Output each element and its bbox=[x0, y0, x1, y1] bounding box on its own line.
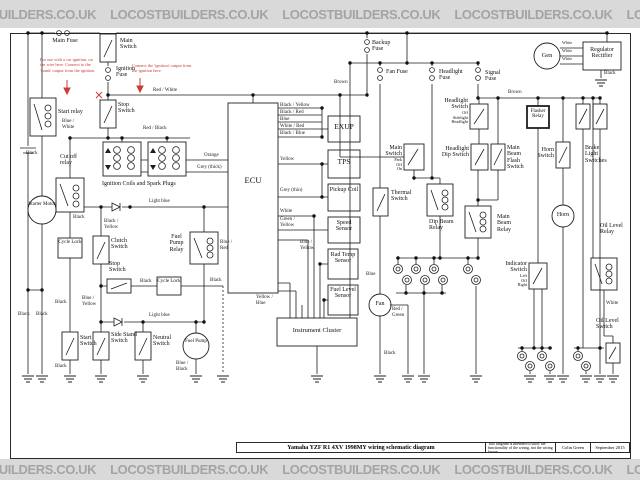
title-block-author: Colin Green bbox=[555, 443, 590, 452]
label-main-switch-top: Main Switch bbox=[120, 38, 146, 51]
wire-label-red-black: Red / Black bbox=[143, 126, 183, 132]
wire-label-blue-red: Blue / Red bbox=[220, 240, 240, 251]
schematic-diagram: Main Fuse Main Switch Ignition Fuse Star… bbox=[0, 28, 640, 459]
page: LOCOSTBUILDERS.CO.UK LOCOSTBUILDERS.CO.U… bbox=[0, 0, 640, 480]
wire-label-grey-thick: Grey (thick) bbox=[197, 165, 231, 171]
title-block: Yamaha YZF R1 4XV 1998MY wiring schemati… bbox=[236, 442, 630, 453]
wire-label-blue-yellow: Blue / Yellow bbox=[82, 296, 102, 307]
wire-label-black: Black bbox=[604, 71, 622, 77]
watermark-text: LOCOSTBUILDERS.CO.UK bbox=[110, 7, 268, 22]
label-fuel-pump-relay: Fuel Pump Relay bbox=[164, 234, 189, 253]
label-signal-fuse: Signal Fuse bbox=[485, 70, 509, 83]
watermark-text: LOCOSTBUILDERS.CO.UK bbox=[282, 7, 440, 22]
watermark-text: LOCOSTBUILDERS.CO.UK bbox=[0, 7, 96, 22]
label-headlight-switch: Headlight Switch bbox=[438, 98, 468, 111]
wire-label-brown: Brown bbox=[334, 80, 354, 86]
wire-label-black-blue: Black / Blue bbox=[280, 131, 316, 137]
label-main-fuse: Main Fuse bbox=[52, 38, 78, 44]
wire-label-blue: Blue bbox=[366, 272, 382, 278]
wire-label-grey-thin: Grey (thin) bbox=[280, 188, 314, 194]
label-clutch-switch: Clutch Switch bbox=[111, 238, 139, 251]
wire-label-black-yellow: Black / Yellow bbox=[104, 219, 130, 230]
wire-label-white-red: White / Red bbox=[280, 124, 316, 130]
watermark-text: LOCOSTBUILDERS.CO.UK bbox=[454, 7, 612, 22]
label-headlight-switch-positions: Off Sidelight Headlight bbox=[438, 111, 468, 125]
title-block-note: This diagram is intended to show the fun… bbox=[485, 443, 555, 452]
label-speed-sensor: Speed Sensor bbox=[328, 220, 360, 233]
title-block-date: September 2015 bbox=[590, 443, 629, 452]
label-fan-fuse: Fan Fuse bbox=[386, 69, 408, 75]
wire-label-black: Black bbox=[55, 300, 71, 306]
watermark-text: LOCOSTBUILDERS.CO.UK bbox=[0, 462, 96, 477]
label-oil-level-switch: Oil Level Switch bbox=[596, 318, 622, 331]
watermark-text: LOCOSTBUILDERS.CO.UK bbox=[627, 462, 640, 477]
label-fuel-level-sensor: Fuel Level Sensor bbox=[328, 287, 358, 300]
label-exup: EXUP bbox=[328, 123, 360, 131]
wire-label-white: White bbox=[606, 301, 624, 307]
label-gen: Gen bbox=[536, 52, 558, 59]
label-indicator-switch: Indicator Switch bbox=[495, 261, 527, 274]
label-ecu: ECU bbox=[228, 176, 278, 185]
wire-label-red-white: Red / White bbox=[153, 88, 193, 94]
label-oil-level-relay: Oil Level Relay bbox=[600, 223, 624, 236]
wire-label-black: Black bbox=[55, 364, 71, 370]
wire-label-green-yellow: Green / Yellow bbox=[280, 217, 304, 228]
diagram-border bbox=[10, 33, 631, 459]
wire-label-black: Black bbox=[210, 278, 226, 284]
note-crank-connection: For use with a car ignition, on the wire… bbox=[40, 57, 96, 73]
label-stop-switch-top: Stop Switch bbox=[118, 102, 146, 115]
wire-label-white: White bbox=[562, 41, 580, 46]
wire-label-black: Black bbox=[140, 279, 156, 285]
wire-label-brown: Brown bbox=[508, 90, 528, 96]
wire-label-blue-yellow: Blue / Yellow bbox=[300, 240, 320, 251]
label-neutral-switch: Neutral Switch bbox=[153, 335, 181, 348]
label-instrument-cluster: Instrument Cluster bbox=[277, 327, 357, 334]
label-main-beam-relay: Main Beam Relay bbox=[497, 214, 523, 233]
label-fuel-pump: Fuel Pump bbox=[183, 339, 209, 344]
label-flasher-relay: Flasher Relay bbox=[527, 109, 549, 120]
wire-label-black-red: Black / Red bbox=[280, 110, 316, 116]
wire-label-black-yellow: Black / Yellow bbox=[280, 103, 320, 109]
wire-label-light-blue: Light blue bbox=[149, 313, 181, 319]
watermark-footer: LOCOSTBUILDERS.CO.UK LOCOSTBUILDERS.CO.U… bbox=[0, 459, 640, 480]
wire-label-black: Black bbox=[73, 215, 89, 221]
label-indicator-switch-positions: Left Off Right bbox=[495, 274, 527, 288]
label-main-switch-positions: Park Off On bbox=[382, 158, 402, 172]
wire-label-black: Black bbox=[26, 151, 42, 157]
wire-label-red-green: Red / Green bbox=[392, 307, 412, 318]
watermark-text: LOCOSTBUILDERS.CO.UK bbox=[282, 462, 440, 477]
label-cycle-lock-2: Cycle Lock bbox=[157, 279, 181, 284]
wire-label-white: White bbox=[562, 49, 580, 54]
wire-label-black: Black bbox=[18, 312, 34, 318]
label-start-relay: Start relay bbox=[58, 109, 102, 115]
label-backup-fuse: Backup Fuse bbox=[372, 40, 400, 53]
wire-label-blue-white: Blue / White bbox=[62, 119, 84, 130]
label-side-stand-switch: Side Stand Switch bbox=[111, 332, 141, 345]
label-main-switch-mid: Main Switch bbox=[376, 145, 402, 158]
wire-label-white: White bbox=[280, 209, 302, 215]
label-cycle-lock-1: Cycle Lock bbox=[58, 240, 82, 245]
wire-label-white: White bbox=[562, 57, 580, 62]
label-tps: TPS bbox=[328, 158, 360, 166]
wire-label-orange: Orange bbox=[204, 153, 228, 159]
watermark-text: LOCOSTBUILDERS.CO.UK bbox=[627, 7, 640, 22]
wire-label-yellow: Yellow bbox=[280, 157, 304, 163]
watermark-header: LOCOSTBUILDERS.CO.UK LOCOSTBUILDERS.CO.U… bbox=[0, 0, 640, 28]
label-headlight-fuse: Headlight Fuse bbox=[439, 69, 473, 82]
watermark-text: LOCOSTBUILDERS.CO.UK bbox=[110, 462, 268, 477]
label-rad-temp-sensor: Rad Temp Sensor bbox=[328, 252, 358, 265]
label-pickup-coil: Pickup Coil bbox=[328, 187, 360, 193]
label-ignition-coils: Ignition Coils and Spark Plugs bbox=[102, 181, 232, 187]
label-dip-beam-relay: Dip Beam Relay bbox=[429, 219, 454, 232]
label-thermal-switch: Thermal Switch bbox=[391, 190, 423, 203]
title-block-title: Yamaha YZF R1 4XV 1998MY wiring schemati… bbox=[237, 443, 485, 452]
wire-label-blue-black: Blue / Black bbox=[176, 361, 196, 372]
label-stop-switch-lower: Stop Switch bbox=[109, 261, 137, 274]
label-starter-motor: Starter Motor bbox=[28, 202, 56, 207]
wire-label-black: Black bbox=[36, 312, 52, 318]
label-start-switch: Start Switch bbox=[80, 335, 106, 348]
label-regulator-rectifier: Regulator Rectifier bbox=[584, 47, 620, 60]
wire-label-yellow-blue: Yellow / Blue bbox=[256, 295, 280, 306]
wire-label-light-blue: Light blue bbox=[149, 199, 181, 205]
label-cut-off-relay: Cut off relay bbox=[60, 154, 90, 167]
watermark-text: LOCOSTBUILDERS.CO.UK bbox=[454, 462, 612, 477]
label-brake-light-switches: Brake Light Switches bbox=[585, 145, 613, 164]
wire-label-blue: Blue bbox=[280, 117, 298, 123]
note-ignition-connection: Connect the 'ignition' output from the i… bbox=[132, 63, 194, 74]
label-horn-switch: Horn Switch bbox=[532, 147, 554, 160]
label-horn: Horn bbox=[552, 212, 574, 218]
wire-label-black: Black bbox=[384, 351, 402, 357]
label-main-beam-flash-switch: Main Beam Flash Switch bbox=[507, 145, 533, 171]
label-fan: Fan bbox=[369, 301, 391, 307]
label-headlight-dip-switch: Headlight Dip Switch bbox=[441, 146, 469, 159]
